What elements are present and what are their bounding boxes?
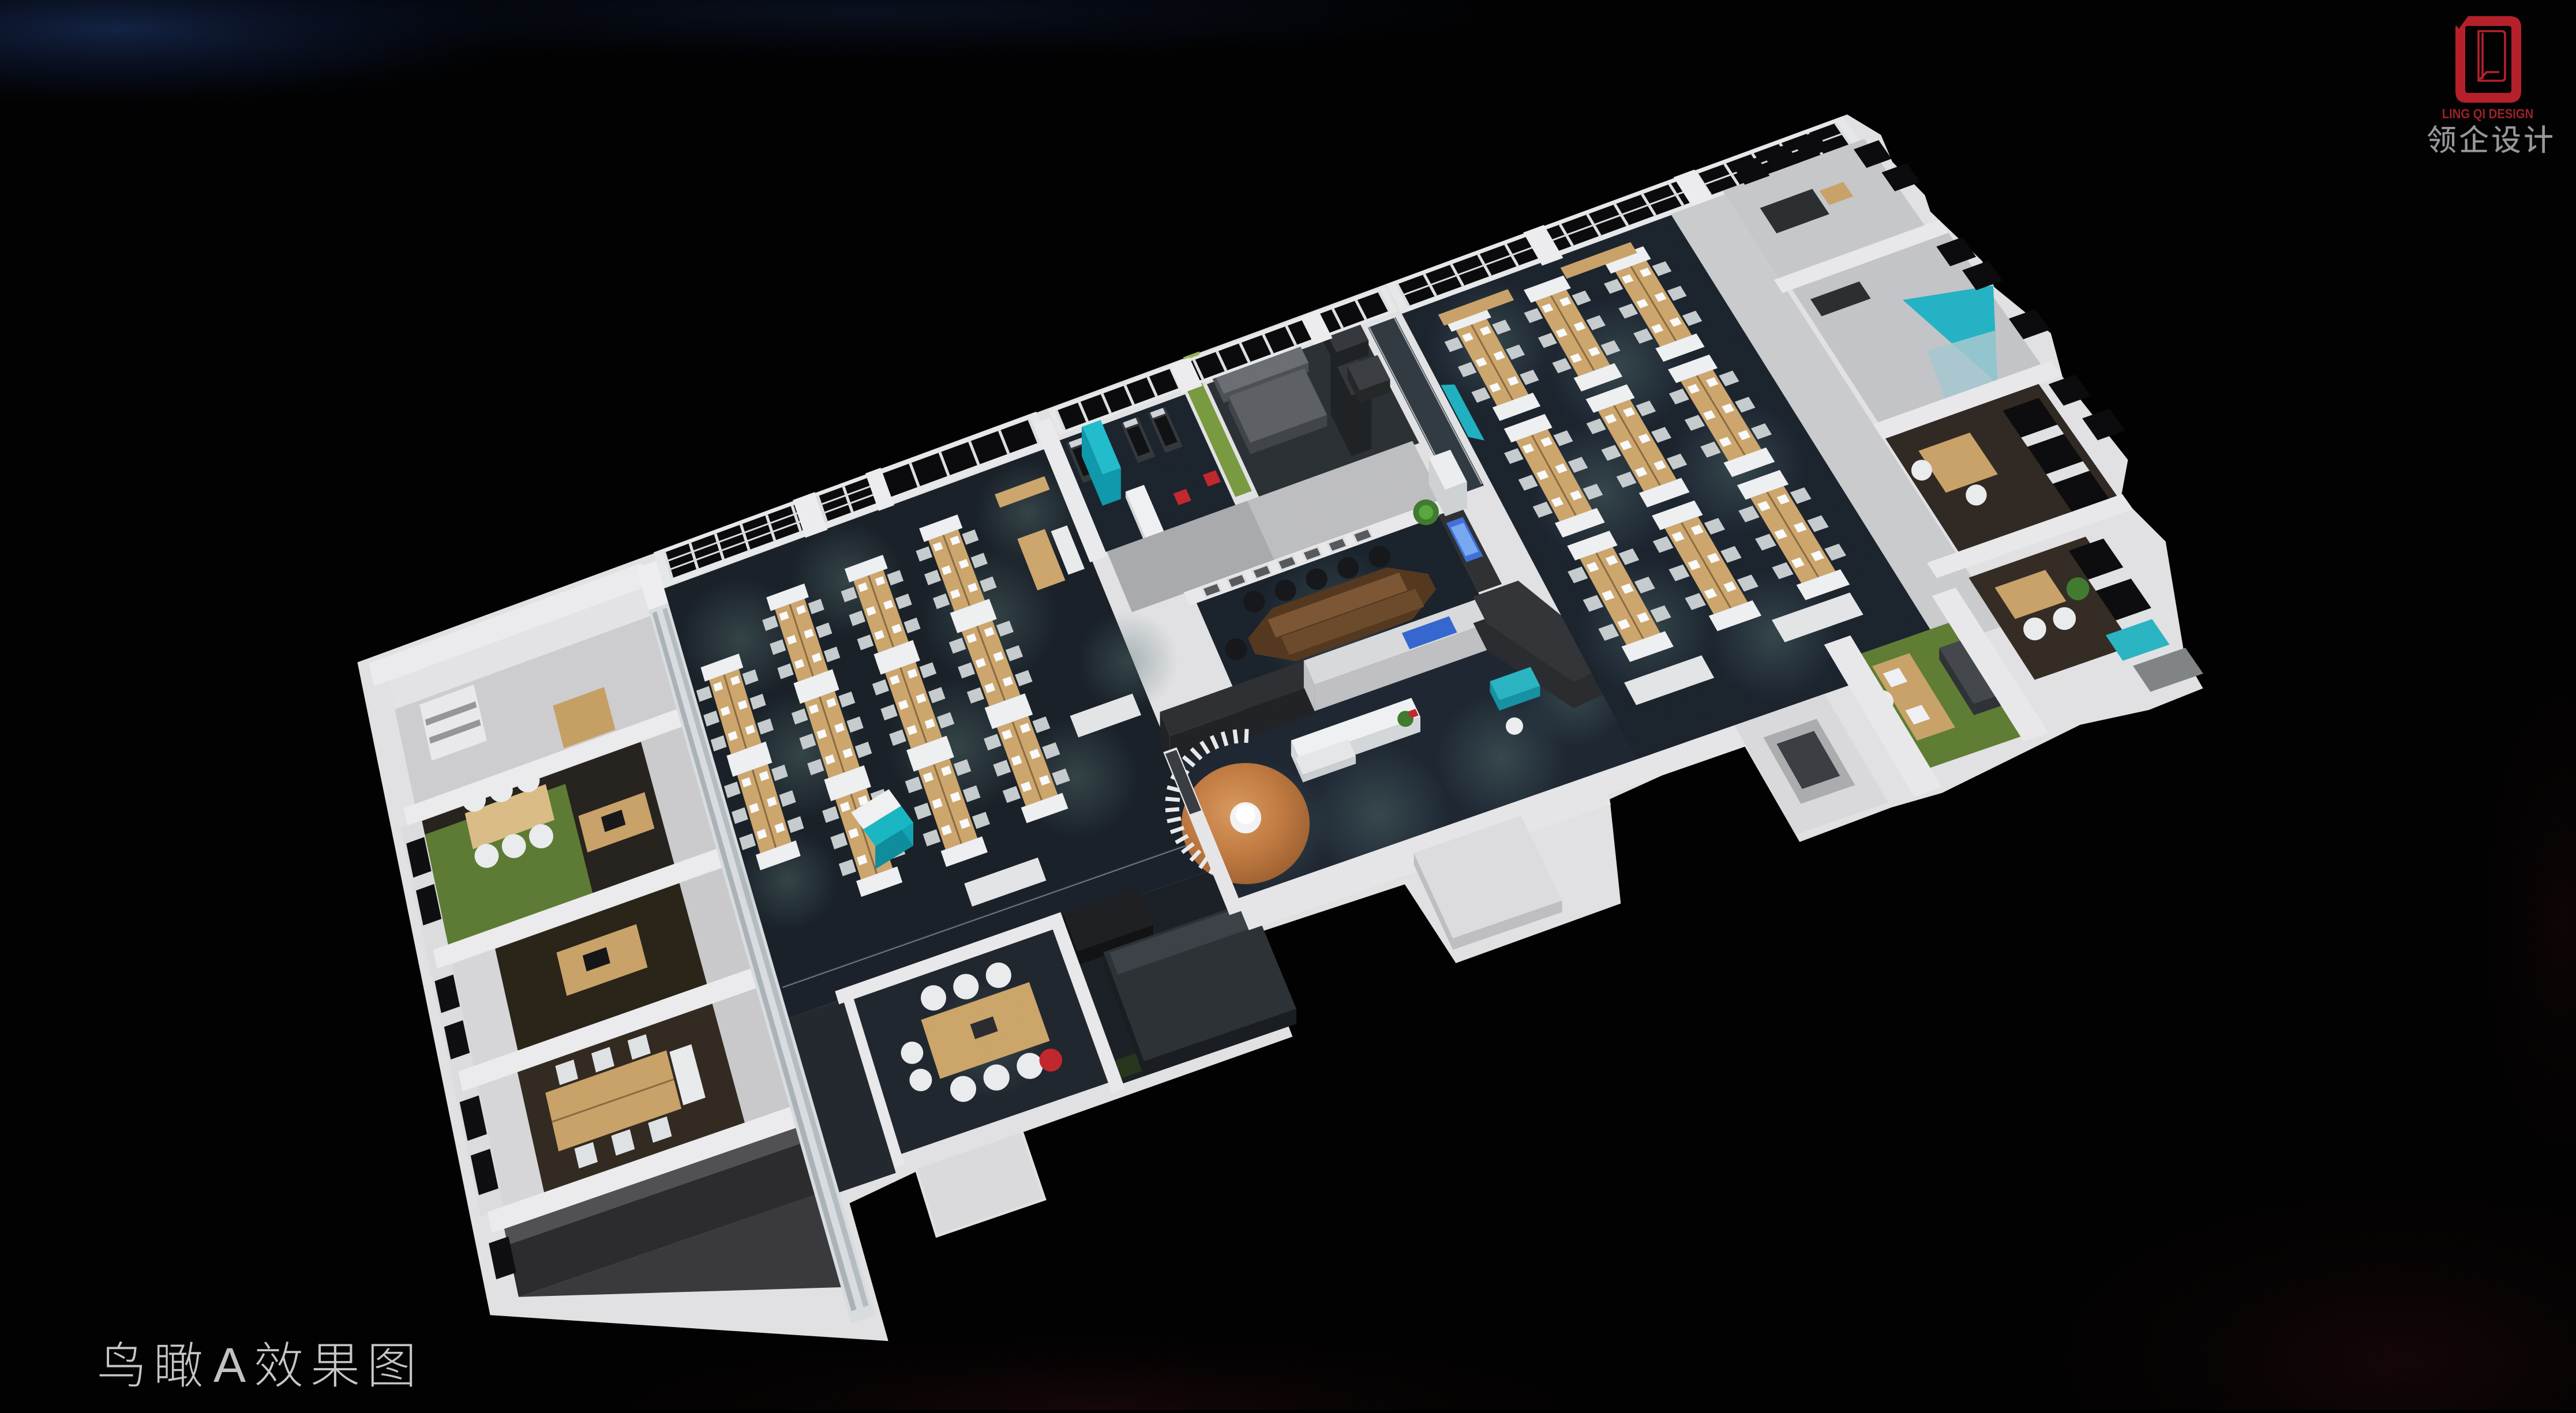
svg-text:A: A xyxy=(213,1338,246,1392)
svg-text:LING QI DESIGN: LING QI DESIGN xyxy=(2442,106,2534,122)
